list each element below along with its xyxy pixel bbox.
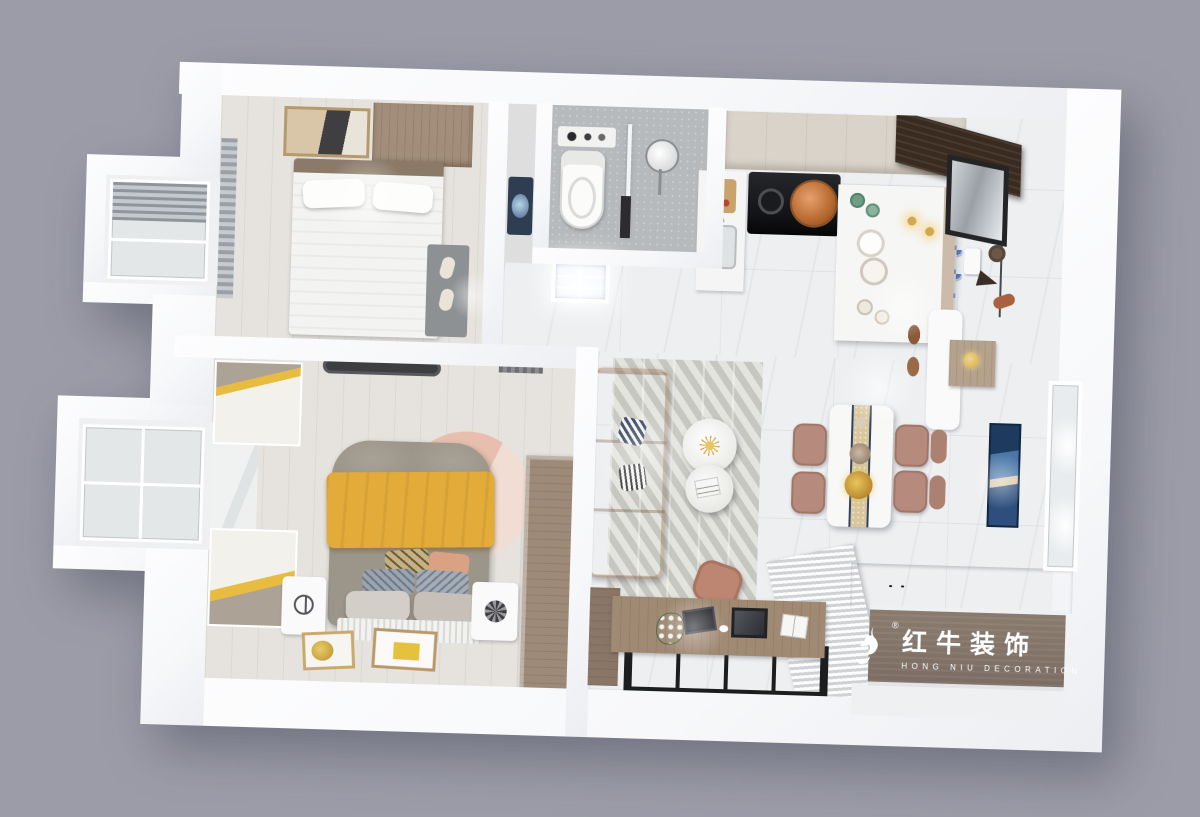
- rack-bag: [992, 292, 1017, 310]
- dining-chair-1: [792, 423, 827, 466]
- copper-pot: [791, 181, 836, 226]
- nightstand-left: [281, 576, 327, 635]
- washer-door: [511, 194, 529, 218]
- registered-mark: ®: [892, 620, 899, 630]
- gold-centerpiece: [699, 435, 720, 456]
- slipper-1: [438, 255, 456, 280]
- floor-hallway: [501, 262, 722, 356]
- nightstand-right: [471, 582, 519, 641]
- bay-upper-window: [107, 179, 210, 282]
- throw-pillow-2: [618, 463, 647, 492]
- hallway-ceiling-light: [551, 260, 610, 304]
- dining-chair-4: [893, 470, 928, 513]
- bathroom-shelf: [558, 126, 617, 148]
- brand-logo: ® 红牛装饰 HONG NIU DECORATION: [851, 621, 1083, 676]
- bay-window-sill: [210, 444, 258, 529]
- slipper-2: [438, 288, 455, 312]
- pillow-right: [372, 181, 434, 214]
- bay-upper-window-mullion: [111, 238, 205, 244]
- gold-ornament: [963, 352, 979, 368]
- entry-coat-rack: [971, 236, 1035, 322]
- chair-backrest-4: [929, 475, 946, 509]
- bay-lower-window: [80, 424, 205, 544]
- rack-cone-hat: [976, 270, 1000, 291]
- floor-picture-frame-1: [302, 630, 355, 670]
- white-cup-2: [874, 310, 889, 325]
- hongniu-bull-icon: [851, 624, 886, 667]
- dining-wall-art: [986, 423, 1021, 528]
- yellow-blanket: [326, 471, 494, 548]
- brand-wood-panel: ® 红牛装饰 HONG NIU DECORATION: [868, 606, 1066, 692]
- clock-decor: [293, 594, 314, 615]
- master-bed: [327, 439, 492, 630]
- chair-backrest-3: [930, 429, 947, 463]
- bay-upper-roller-blind: [112, 182, 207, 223]
- rack-hat: [988, 245, 1005, 262]
- study-desk: [611, 596, 827, 658]
- laptop: [682, 606, 717, 634]
- dining-table: [826, 404, 894, 528]
- floorplan-render: ® 红牛装饰 HONG NIU DECORATION: [0, 0, 1200, 817]
- pillow-row3-left: [346, 591, 410, 621]
- bedside-rug: [425, 244, 470, 337]
- plate-stack-1: [856, 229, 885, 258]
- shower-partition-bar: [620, 196, 631, 238]
- wall-left-lower: [140, 548, 208, 726]
- magazine: [694, 477, 721, 499]
- dining-chair-2: [791, 471, 826, 514]
- washing-machine: [507, 177, 534, 236]
- wall-art-second-bedroom: [283, 106, 370, 159]
- dining-window: [1043, 381, 1083, 572]
- stove-burner: [758, 188, 785, 215]
- brand-text: 红牛装饰 HONG NIU DECORATION: [901, 622, 1083, 675]
- monitor-frame: [731, 607, 768, 638]
- green-cup-2: [866, 203, 880, 217]
- desk-plant: [657, 613, 684, 644]
- notebook: [780, 614, 809, 639]
- mouse: [719, 625, 728, 632]
- gold-art: [311, 640, 334, 661]
- wood-shoe-stool: [949, 340, 996, 387]
- dining-chair-3: [894, 424, 929, 467]
- wardrobe-second-bedroom: [372, 103, 474, 168]
- green-cup-1: [850, 193, 865, 208]
- kitchen-stove: [747, 172, 841, 237]
- brand-name-cn: 红牛装饰: [902, 622, 1083, 663]
- floor-picture-frame-2: [371, 628, 437, 672]
- bed-second-bedroom: [289, 158, 444, 338]
- fan-decor: [484, 600, 507, 623]
- striped-wall-panel-upper: [213, 360, 303, 447]
- plate-stack-2: [860, 257, 889, 286]
- pillow-left: [302, 178, 365, 208]
- wall-left-upper: [180, 62, 223, 168]
- entry-mirror: [945, 154, 1009, 247]
- white-cup-1: [857, 299, 873, 315]
- toilet-seat: [567, 176, 596, 219]
- leather-sofa: [587, 367, 669, 579]
- entry-shoes: [907, 323, 921, 383]
- brand-name-en: HONG NIU DECORATION: [901, 661, 1082, 675]
- throw-pillow-1: [616, 416, 647, 447]
- yellow-art: [393, 642, 420, 661]
- toilet: [559, 150, 605, 229]
